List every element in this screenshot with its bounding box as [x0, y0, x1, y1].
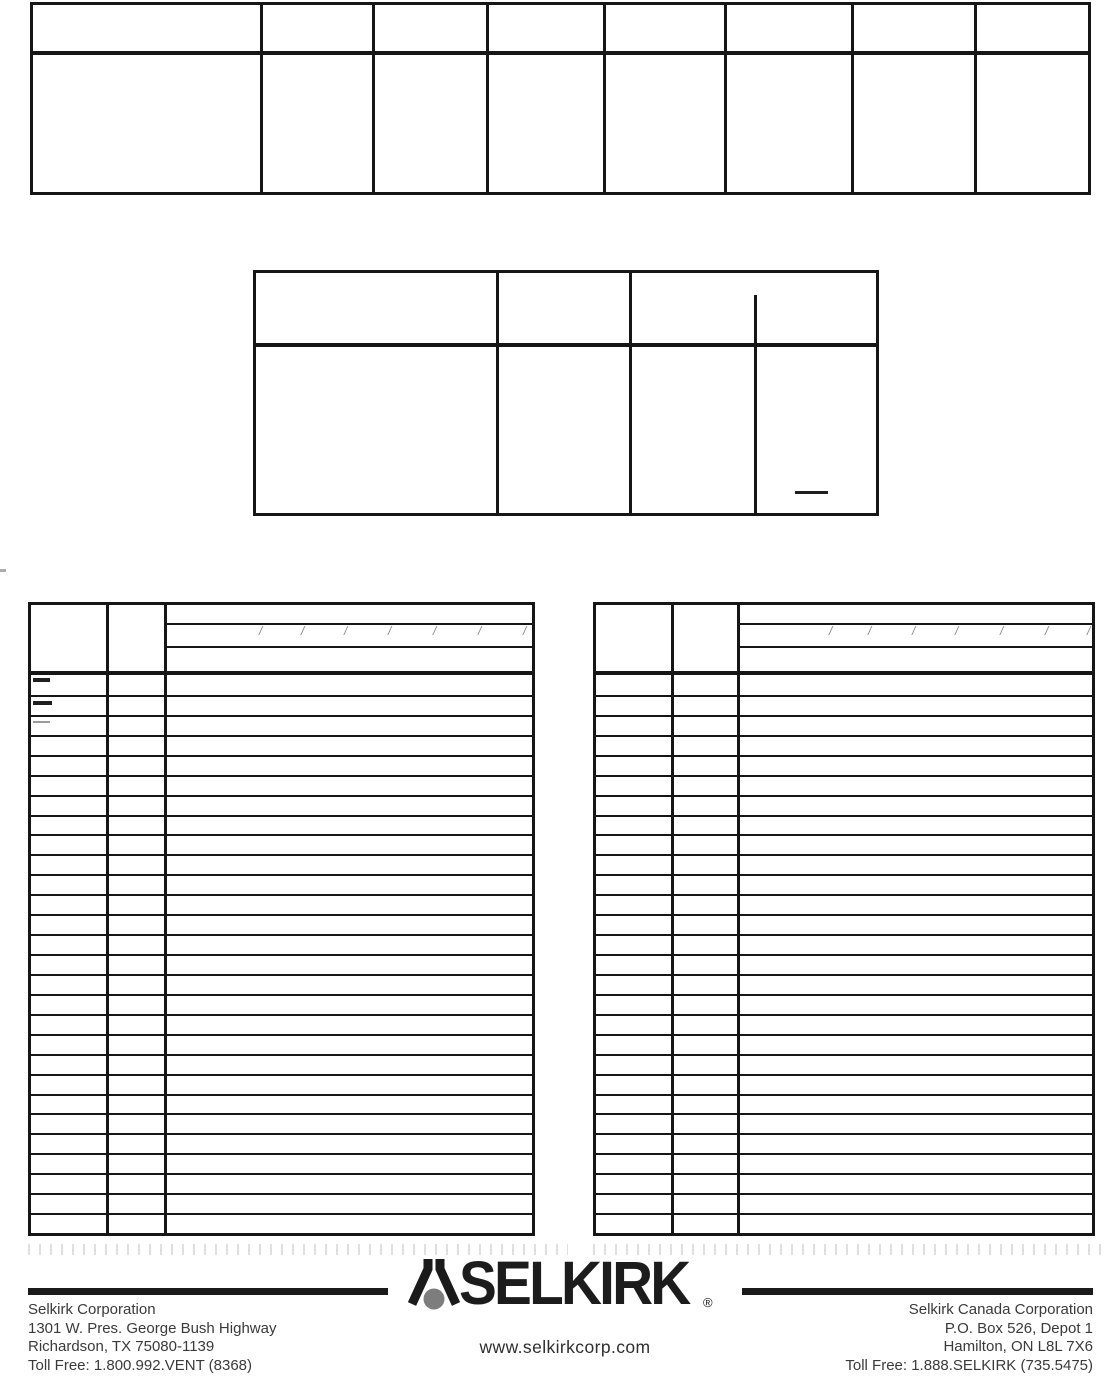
grid-row-line	[596, 1094, 1092, 1096]
grid-row-line	[31, 1034, 532, 1036]
grid-row-line	[31, 795, 532, 797]
grid-row-line	[31, 1014, 532, 1016]
grid-band-line	[164, 623, 532, 625]
grid-row-line	[596, 854, 1092, 856]
grid-header-line	[33, 51, 1088, 55]
grid-row-line	[596, 934, 1092, 936]
grid-row-line	[596, 1054, 1092, 1056]
grid-row-line	[596, 735, 1092, 737]
header-slash-mark: /	[912, 625, 915, 637]
grid-row-line	[596, 755, 1092, 757]
stray-dash-mark	[33, 678, 50, 682]
grid-row-line	[31, 1054, 532, 1056]
us-address-line: Toll Free: 1.800.992.VENT (8368)	[28, 1357, 388, 1376]
middle-table-grid	[253, 270, 879, 516]
header-slash-mark: /	[344, 625, 347, 637]
grid-row-line	[596, 1173, 1092, 1175]
grid-header-line	[596, 671, 1092, 675]
header-slash-mark: /	[523, 625, 526, 637]
grid-row-line	[596, 795, 1092, 797]
grid-vline	[974, 5, 977, 192]
grid-row-line	[596, 974, 1092, 976]
grid-partial-vline	[754, 295, 757, 513]
grid-row-line	[31, 1074, 532, 1076]
grid-row-line	[31, 735, 532, 737]
header-slash-mark: /	[478, 625, 481, 637]
grid-row-line	[596, 994, 1092, 996]
header-slash-mark: /	[433, 625, 436, 637]
grid-row-line	[31, 894, 532, 896]
grid-vline	[629, 273, 632, 513]
header-slash-mark: /	[259, 625, 262, 637]
grid-row-line	[31, 775, 532, 777]
grid-row-line	[596, 914, 1092, 916]
website-url: www.selkirkcorp.com	[400, 1337, 730, 1358]
grid-row-line	[31, 715, 532, 717]
header-slash-mark: /	[955, 625, 958, 637]
grid-row-line	[31, 695, 532, 697]
grid-row-line	[31, 1153, 532, 1155]
grid-vline	[671, 605, 674, 1233]
header-slash-mark: /	[829, 625, 832, 637]
grid-row-line	[596, 1133, 1092, 1135]
brand-wordmark: SELKIRK	[459, 1257, 688, 1309]
grid-row-line	[596, 1074, 1092, 1076]
grid-vline	[164, 605, 167, 1233]
grid-vline	[106, 605, 109, 1233]
grid-row-line	[31, 914, 532, 916]
canada-address-line: Selkirk Canada Corporation	[713, 1301, 1093, 1320]
grid-row-line	[596, 1153, 1092, 1155]
grid-band-line	[737, 646, 1092, 648]
grid-vline	[486, 5, 489, 192]
header-slash-mark: /	[388, 625, 391, 637]
header-slash-mark: /	[868, 625, 871, 637]
grid-row-line	[31, 755, 532, 757]
footer-rule-right	[742, 1288, 1093, 1295]
grid-row-line	[31, 974, 532, 976]
grid-vline	[372, 5, 375, 192]
grid-row-line	[31, 994, 532, 996]
grid-row-line	[31, 1133, 532, 1135]
grid-row-line	[31, 834, 532, 836]
us-address-line: 1301 W. Pres. George Bush Highway	[28, 1320, 388, 1339]
grid-row-line	[596, 1034, 1092, 1036]
us-address-line: Richardson, TX 75080-1139	[28, 1338, 388, 1357]
us-address-line: Selkirk Corporation	[28, 1301, 388, 1320]
parts-table-right-grid: ///////	[593, 602, 1095, 1236]
top-table-grid	[30, 2, 1091, 195]
margin-mark	[0, 569, 6, 572]
grid-vline	[496, 273, 499, 513]
grid-row-line	[31, 1213, 532, 1215]
header-slash-mark: /	[301, 625, 304, 637]
grid-row-line	[596, 874, 1092, 876]
canada-address-line: P.O. Box 526, Depot 1	[713, 1320, 1093, 1339]
grid-row-line	[596, 1113, 1092, 1115]
grid-row-line	[596, 1213, 1092, 1215]
canada-address-line: Hamilton, ON L8L 7X6	[713, 1338, 1093, 1357]
page: SELKIRK ® www.selkirkcorp.com Selkirk Co…	[0, 0, 1104, 1379]
footer-rule-left	[28, 1288, 388, 1295]
grid-row-line	[596, 834, 1092, 836]
grid-row-line	[31, 874, 532, 876]
registered-trademark-symbol: ®	[703, 1295, 713, 1310]
grid-row-line	[596, 1014, 1092, 1016]
grid-row-line	[31, 954, 532, 956]
scan-tick-strip	[28, 1244, 568, 1255]
grid-row-line	[31, 1193, 532, 1195]
grid-row-line	[31, 1094, 532, 1096]
grid-row-line	[31, 815, 532, 817]
grid-row-line	[31, 934, 532, 936]
grid-vline	[260, 5, 263, 192]
us-address-block: Selkirk Corporation 1301 W. Pres. George…	[28, 1301, 388, 1375]
grid-row-line	[596, 1193, 1092, 1195]
grid-row-line	[596, 954, 1092, 956]
grid-row-line	[596, 715, 1092, 717]
canada-address-line: Toll Free: 1.888.SELKIRK (735.5475)	[713, 1357, 1093, 1376]
grid-vline	[724, 5, 727, 192]
selkirk-chimney-icon	[405, 1258, 463, 1310]
parts-table-left-grid: ///////	[28, 602, 535, 1236]
grid-vline	[851, 5, 854, 192]
header-slash-mark: /	[1000, 625, 1003, 637]
grid-vline	[737, 605, 740, 1233]
grid-vline	[603, 5, 606, 192]
grid-header-line	[256, 343, 876, 347]
grid-header-line	[31, 671, 532, 675]
canada-address-block: Selkirk Canada Corporation P.O. Box 526,…	[713, 1301, 1093, 1375]
header-slash-mark: /	[1087, 625, 1090, 637]
grid-row-line	[596, 695, 1092, 697]
grid-row-line	[596, 815, 1092, 817]
grid-row-line	[31, 1113, 532, 1115]
stray-dash-mark	[33, 721, 50, 723]
stray-dash-mark	[795, 491, 828, 494]
scan-tick-strip	[593, 1244, 1104, 1255]
grid-band-line	[164, 646, 532, 648]
grid-row-line	[31, 854, 532, 856]
header-slash-mark: /	[1045, 625, 1048, 637]
grid-row-line	[596, 775, 1092, 777]
grid-row-line	[31, 1173, 532, 1175]
stray-dash-mark	[33, 701, 52, 705]
grid-row-line	[596, 894, 1092, 896]
